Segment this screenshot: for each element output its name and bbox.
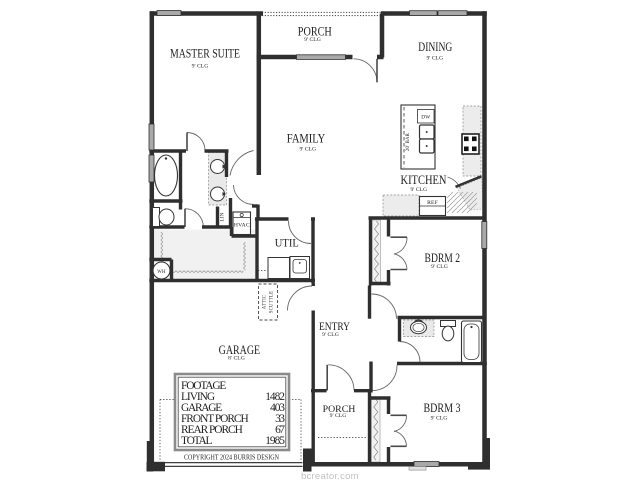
svg-text:bcreator.com: bcreator.com xyxy=(301,471,359,480)
svg-text:9' CLG: 9' CLG xyxy=(330,413,347,419)
svg-text:FAMILY: FAMILY xyxy=(287,131,326,146)
svg-text:DW: DW xyxy=(421,114,430,120)
svg-text:KITCHEN: KITCHEN xyxy=(401,172,447,187)
svg-text:REF: REF xyxy=(427,200,438,206)
svg-text:DINING: DINING xyxy=(418,39,452,54)
svg-text:9' CLG: 9' CLG xyxy=(431,264,448,270)
svg-text:BDRM 3: BDRM 3 xyxy=(424,401,461,415)
svg-text:9' CLG: 9' CLG xyxy=(304,37,321,43)
svg-text:1985: 1985 xyxy=(265,435,285,447)
svg-text:9' CLG: 9' CLG xyxy=(192,64,209,70)
svg-text:8' CLG: 8' CLG xyxy=(228,355,245,361)
svg-text:20' BAR: 20' BAR xyxy=(406,132,411,151)
svg-text:WH: WH xyxy=(157,270,166,275)
svg-text:9' CLG: 9' CLG xyxy=(410,187,427,193)
svg-text:COPYRIGHT 2024 BURRIS DESIGN: COPYRIGHT 2024 BURRIS DESIGN xyxy=(184,453,279,462)
svg-text:9' CLG: 9' CLG xyxy=(426,56,443,62)
svg-text:TOTAL: TOTAL xyxy=(181,435,213,447)
svg-text:9' CLG: 9' CLG xyxy=(299,147,316,153)
svg-text:SCUTTLE: SCUTTLE xyxy=(270,291,275,313)
svg-text:HVAC: HVAC xyxy=(234,223,250,229)
svg-text:LIN: LIN xyxy=(219,212,225,221)
svg-text:ATTIC: ATTIC xyxy=(263,295,268,310)
svg-text:9' CLG: 9' CLG xyxy=(322,332,339,338)
svg-text:9' CLG: 9' CLG xyxy=(431,415,448,421)
svg-text:MASTER SUITE: MASTER SUITE xyxy=(170,47,240,61)
svg-text:UTIL: UTIL xyxy=(275,238,299,250)
